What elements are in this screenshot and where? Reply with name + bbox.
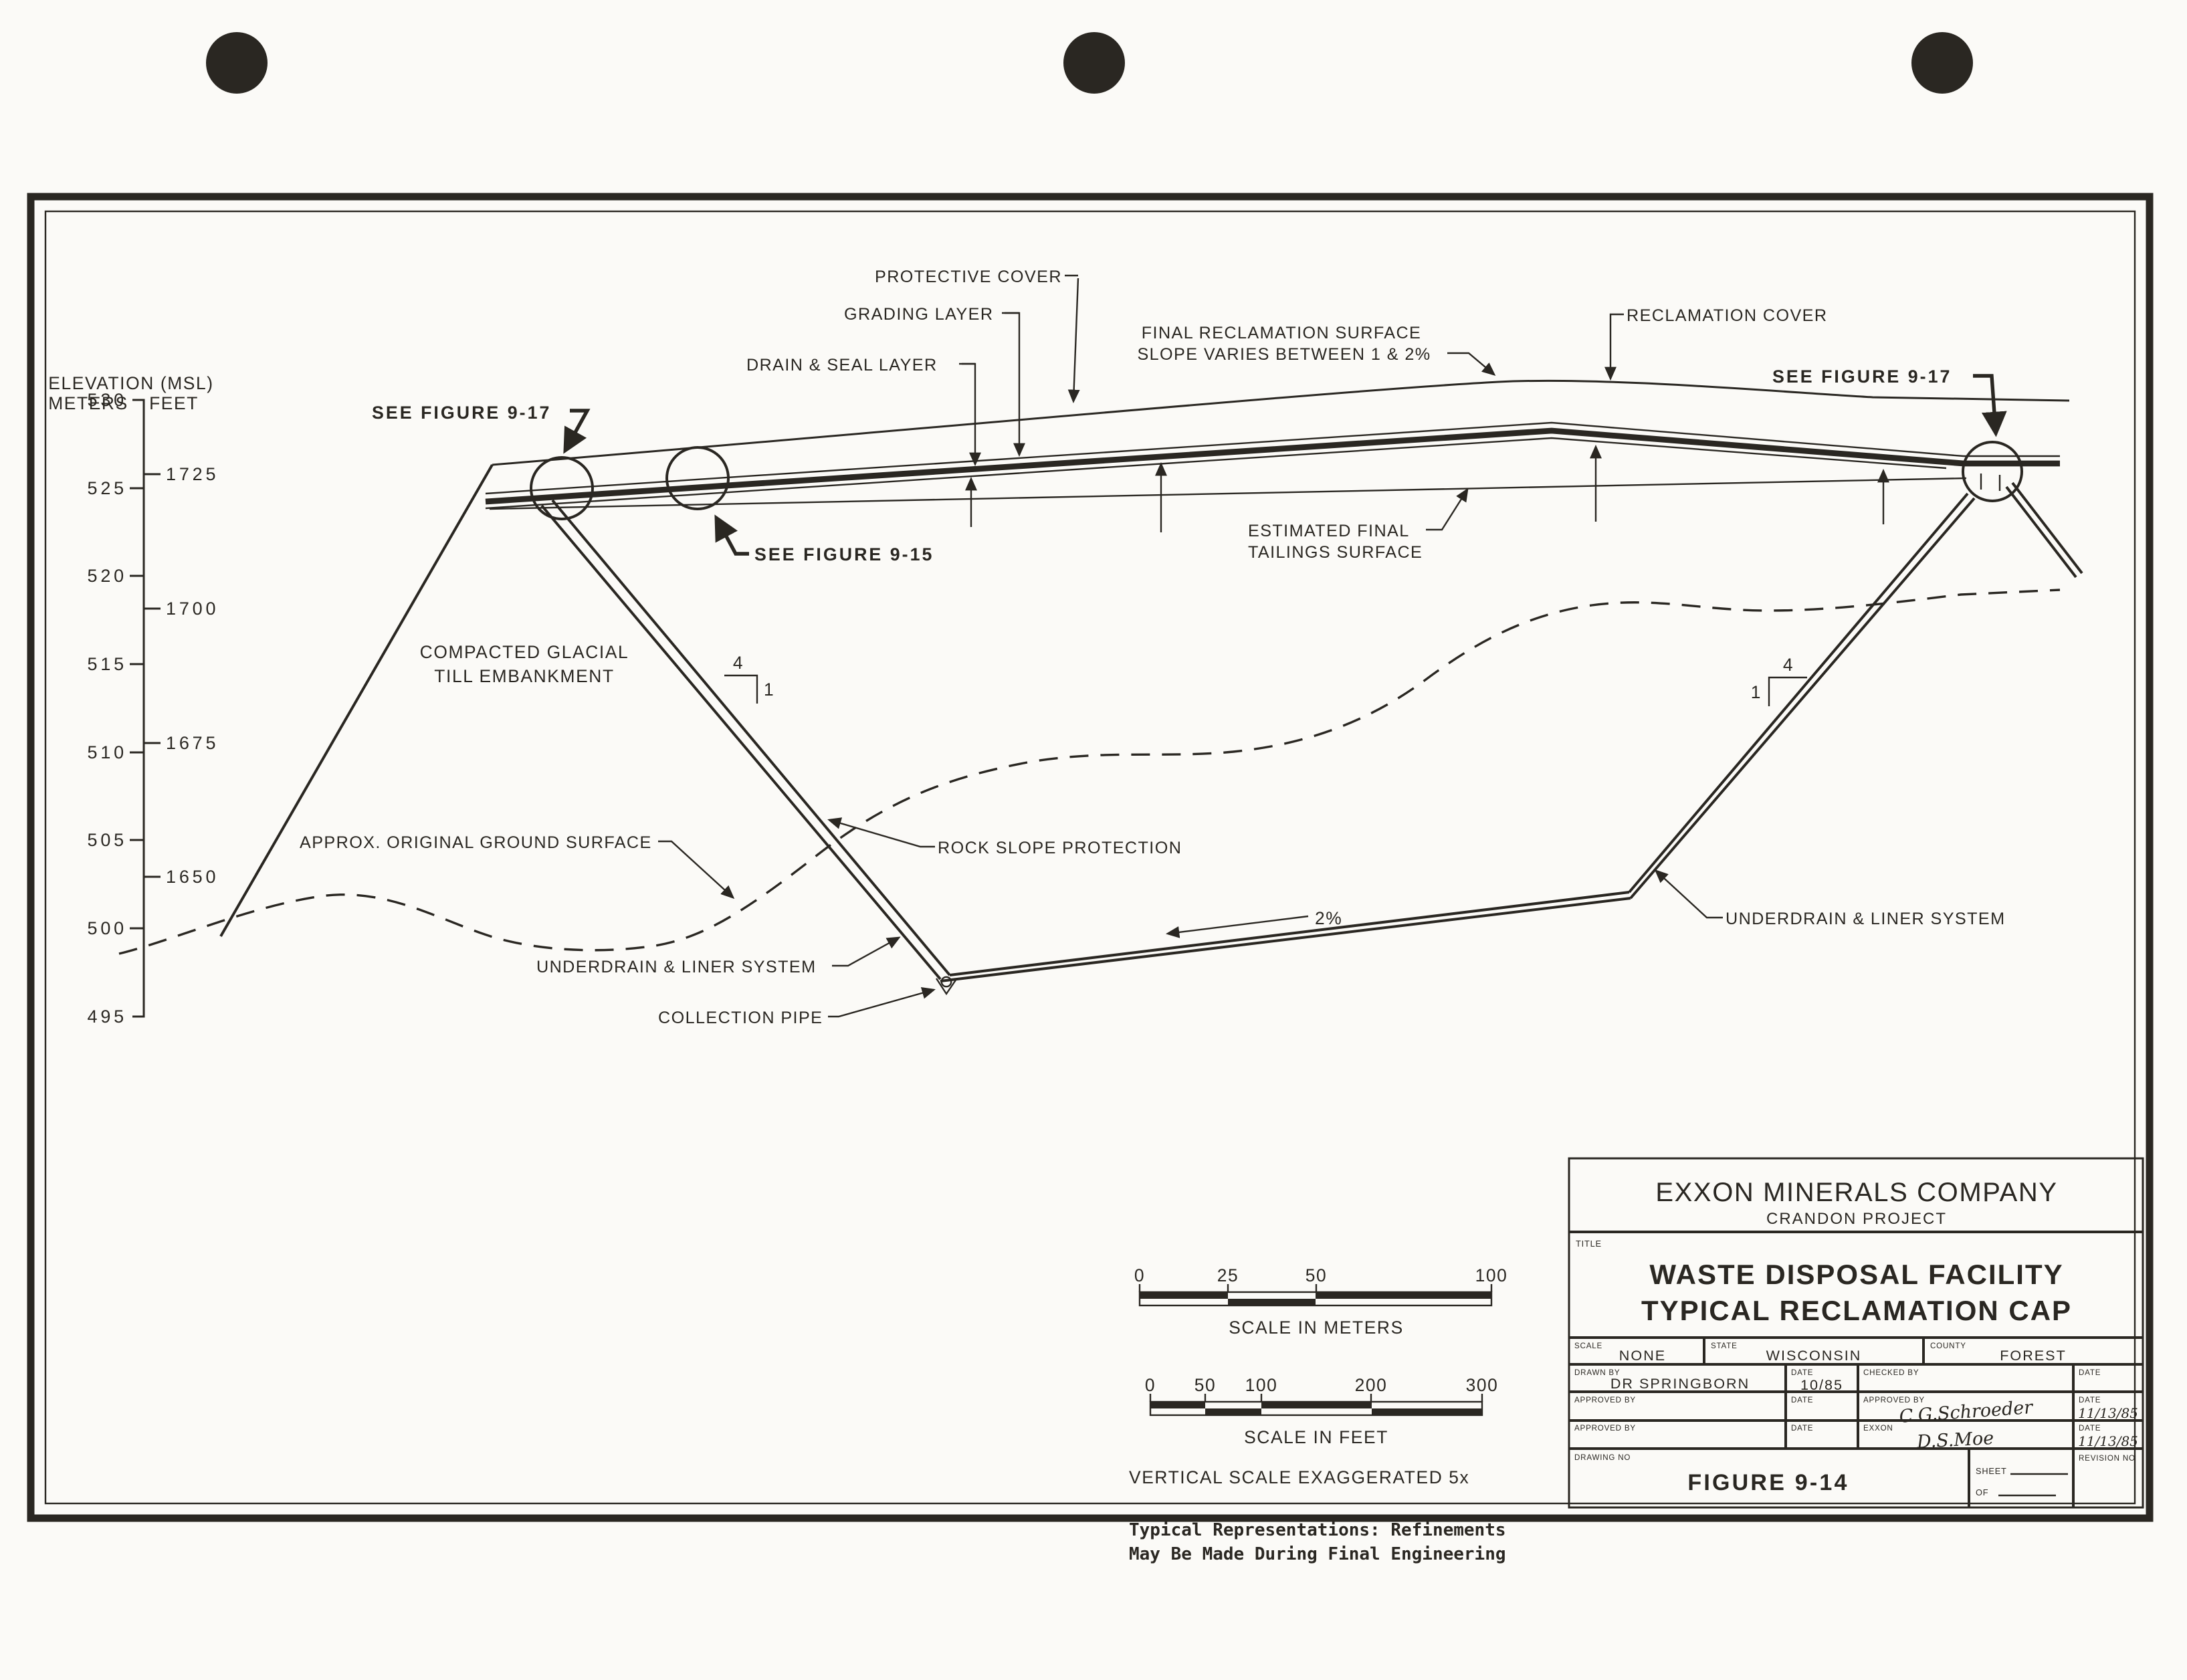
- drawing-title-line1: WASTE DISPOSAL FACILITY: [1649, 1259, 2063, 1290]
- title-block-col-lines-drawno-row: [1969, 1449, 2073, 1507]
- drawing-no-value: FIGURE 9-14: [1687, 1470, 1849, 1495]
- date-label: DATE: [2079, 1424, 2101, 1433]
- meters-bar-caption: SCALE IN METERS: [1229, 1318, 1404, 1338]
- figure-9-14-drawing: ELEVATION (MSL) METERS FEET 530 525 520 …: [0, 0, 2187, 1680]
- final-reclamation-leader-arrow: [1447, 353, 1494, 375]
- underdrain-right-leader-arrow: [1656, 871, 1723, 918]
- estimated-final-label-line2: TAILINGS SURFACE: [1248, 543, 1423, 562]
- disclaimer-line1: Typical Representations: Refinements: [1129, 1520, 1506, 1540]
- exxon-label: EXXON: [1863, 1424, 1893, 1433]
- basin-floor-liner: [940, 892, 1631, 981]
- compacted-glacial-label-line2: TILL EMBANKMENT: [434, 666, 614, 686]
- date-label: DATE: [1791, 1424, 1813, 1433]
- county-value: FOREST: [2000, 1347, 2067, 1364]
- protective-cover-arrow: [1073, 278, 1078, 401]
- title-block: EXXON MINERALS COMPANY CRANDON PROJECT T…: [1569, 1158, 2143, 1507]
- see-figure-9-17-left-arrow: [566, 411, 587, 449]
- state-value: WISCONSIN: [1766, 1347, 1862, 1364]
- original-ground-dashed-line: [119, 590, 2060, 954]
- exxon-date-value: 11/13/85: [2078, 1433, 2138, 1449]
- embankment-outer-slope-line: [221, 465, 492, 936]
- approved-date-value: 11/13/85: [2078, 1405, 2138, 1421]
- feet-bar-tick-label: 200: [1355, 1375, 1388, 1395]
- sheet-label: SHEET: [1976, 1466, 2007, 1476]
- estimated-final-label-line1: ESTIMATED FINAL: [1248, 522, 1410, 540]
- estimated-final-leader-arrow: [1426, 490, 1467, 530]
- see-figure-9-15-arrow: [717, 519, 749, 554]
- punch-hole-right: [1911, 32, 1973, 94]
- slope-ratio-marker-left: 4 1: [724, 653, 774, 704]
- drain-seal-layer-arrow: [962, 364, 975, 464]
- see-figure-9-17-right-label: SEE FIGURE 9-17: [1772, 366, 1952, 387]
- right-crest-liner-stubs: [1981, 474, 2000, 491]
- basin-slope-arrow: [1168, 916, 1308, 934]
- basin-slope-label: 2%: [1315, 908, 1342, 928]
- drawing-no-label: DRAWING NO: [1574, 1453, 1631, 1462]
- annotation-labels: PROTECTIVE COVER GRADING LAYER DRAIN & S…: [300, 268, 2005, 1027]
- slope-ratio-4: 4: [1783, 655, 1794, 675]
- of-label: OF: [1976, 1487, 1988, 1497]
- drawn-by-value: DR SPRINGBORN: [1610, 1375, 1750, 1392]
- meters-bar-tick-label: 50: [1306, 1265, 1328, 1285]
- slope-ratio-4: 4: [733, 653, 744, 673]
- feet-bar-tick-label: 300: [1466, 1375, 1499, 1395]
- right-outer-slope-line: [2006, 483, 2082, 577]
- reclamation-cover-leader-arrow: [1610, 314, 1624, 379]
- company-name: EXXON MINERALS COMPANY: [1655, 1178, 2057, 1207]
- see-figure-9-17-right-arrow: [1973, 376, 1996, 432]
- feet-tick-label: 1700: [166, 599, 219, 619]
- elevation-meters-tick-marks: [130, 488, 144, 928]
- meters-bar-tick-label: 0: [1134, 1265, 1145, 1285]
- protective-cover-label: PROTECTIVE COVER: [875, 268, 1062, 286]
- meters-bar-tick-label: 25: [1217, 1265, 1239, 1285]
- rock-slope-protection-label: ROCK SLOPE PROTECTION: [938, 839, 1182, 857]
- meters-tick-label: 510: [88, 742, 127, 762]
- revision-no-label: REVISION NO: [2079, 1454, 2136, 1463]
- slope-ratio-bracket-right: [1769, 677, 1807, 706]
- exxon-signature: D.S.Moe: [1915, 1428, 1994, 1453]
- approved-by-label: APPROVED BY: [1574, 1424, 1636, 1433]
- meters-tick-label: 495: [88, 1007, 127, 1027]
- vertical-scale-note: VERTICAL SCALE EXAGGERATED 5x: [1129, 1467, 1469, 1487]
- approved-by-label: APPROVED BY: [1574, 1396, 1636, 1404]
- punch-hole-left: [206, 32, 268, 94]
- feet-tick-label: 1650: [166, 867, 219, 887]
- slope-ratio-1: 1: [764, 679, 774, 700]
- meters-bar-tick-label: 100: [1475, 1265, 1508, 1285]
- meters-tick-label: 505: [88, 830, 127, 850]
- feet-bar-caption: SCALE IN FEET: [1244, 1427, 1388, 1447]
- meters-tick-label: 525: [88, 478, 127, 498]
- elevation-feet-heading: FEET: [149, 393, 199, 413]
- scale-label: SCALE: [1574, 1342, 1602, 1350]
- meters-bar-ticks: [1140, 1284, 1491, 1292]
- detail-callout-circle-right-crest: [1963, 442, 2022, 501]
- meters-tick-label: 500: [88, 918, 127, 938]
- grading-layer-label: GRADING LAYER: [844, 305, 993, 324]
- disclaimer-line2: May Be Made During Final Engineering: [1129, 1544, 1506, 1564]
- title-label: TITLE: [1576, 1239, 1602, 1249]
- drain-seal-layer-label: DRAIN & SEAL LAYER: [746, 356, 938, 375]
- feet-bar-tick-label: 100: [1245, 1375, 1278, 1395]
- drawing-title-line2: TYPICAL RECLAMATION CAP: [1641, 1295, 2072, 1326]
- cross-section: [119, 381, 2082, 994]
- state-label: STATE: [1711, 1342, 1738, 1350]
- punch-hole-center: [1063, 32, 1125, 94]
- feet-bar-tick-label: 0: [1145, 1375, 1156, 1395]
- collection-pipe-label: COLLECTION PIPE: [658, 1009, 823, 1027]
- collection-pipe-leader-arrow: [828, 990, 934, 1017]
- final-reclamation-label-line2: SLOPE VARIES BETWEEN 1 & 2%: [1137, 345, 1431, 364]
- meters-tick-label: 530: [88, 390, 127, 410]
- elevation-feet-tick-marks: [144, 474, 161, 877]
- underdrain-right-label: UNDERDRAIN & LINER SYSTEM: [1726, 910, 2005, 928]
- underdrain-left-label: UNDERDRAIN & LINER SYSTEM: [536, 958, 816, 976]
- grading-layer-arrow: [1005, 313, 1019, 455]
- approved-by-label: APPROVED BY: [1863, 1396, 1925, 1404]
- reclamation-cover-label: RECLAMATION COVER: [1627, 306, 1827, 325]
- feet-bar-tick-label: 50: [1194, 1375, 1217, 1395]
- compacted-glacial-label-line1: COMPACTED GLACIAL: [420, 642, 629, 662]
- meters-scale-bar: [1140, 1292, 1491, 1305]
- slope-ratio-bracket-left: [724, 675, 757, 704]
- approx-original-ground-label: APPROX. ORIGINAL GROUND SURFACE: [300, 833, 652, 852]
- see-figure-9-17-left-label: SEE FIGURE 9-17: [372, 403, 551, 423]
- project-name: CRANDON PROJECT: [1766, 1210, 1947, 1228]
- date-label: DATE: [2079, 1368, 2101, 1377]
- final-reclamation-label-line1: FINAL RECLAMATION SURFACE: [1142, 324, 1421, 342]
- elevation-scale-title: ELEVATION (MSL): [48, 373, 213, 393]
- elevation-scale: ELEVATION (MSL) METERS FEET 530 525 520 …: [48, 373, 219, 1027]
- see-figure-9-15-label: SEE FIGURE 9-15: [754, 544, 934, 564]
- meters-tick-label: 520: [88, 566, 127, 586]
- checked-by-label: CHECKED BY: [1863, 1368, 1919, 1377]
- scale-value: NONE: [1619, 1347, 1666, 1364]
- meters-tick-label: 515: [88, 654, 127, 674]
- feet-tick-label: 1675: [166, 733, 219, 753]
- feet-tick-label: 1725: [166, 464, 219, 484]
- elevation-axis-line: [132, 400, 144, 1017]
- county-label: COUNTY: [1930, 1342, 1966, 1350]
- slope-ratio-1: 1: [1751, 682, 1762, 702]
- date-label: DATE: [1791, 1396, 1813, 1404]
- slope-ratio-marker-right: 4 1: [1751, 655, 1807, 706]
- scanned-drawing-sheet: ELEVATION (MSL) METERS FEET 530 525 520 …: [0, 0, 2187, 1680]
- underdrain-liner-right-slope: [1629, 494, 1974, 898]
- underdrain-left-leader-arrow: [832, 938, 899, 966]
- approx-original-ground-leader-arrow: [658, 841, 733, 898]
- date-label: DATE: [2079, 1396, 2101, 1404]
- feet-scale-bar: [1150, 1402, 1482, 1415]
- drawn-date-value: 10/85: [1800, 1376, 1843, 1393]
